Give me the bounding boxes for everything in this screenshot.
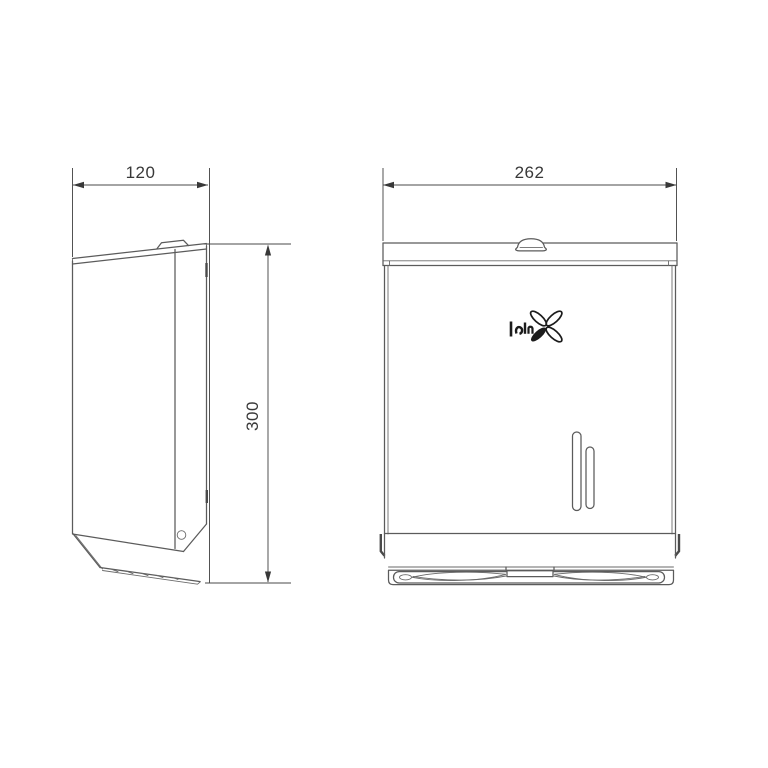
logo-wordmark: [511, 322, 533, 337]
arrowhead-bottom: [265, 572, 271, 583]
side-view: 120 300: [73, 163, 292, 584]
pinwheel-petal: [544, 325, 564, 344]
view-window-slots: [573, 432, 595, 511]
slot-centre-tab: [507, 571, 553, 577]
pinwheel-petal: [544, 309, 564, 328]
slot-end-oval-right: [647, 575, 659, 580]
chute-lip-inner: [103, 571, 201, 585]
front-chute: [381, 534, 679, 585]
pinwheel-petal: [528, 309, 548, 328]
chute-front-outer: [73, 534, 100, 568]
side-height-dimension: 300: [202, 244, 291, 583]
arrowhead-top: [265, 245, 271, 256]
arrowhead-left: [73, 182, 84, 188]
front-width-dimension: 262: [383, 163, 677, 241]
latch-dome-icon: [516, 239, 547, 251]
brand-logo: [511, 309, 564, 344]
dispenser-drawing-svg: 120 300: [0, 0, 768, 768]
logo-text-mark: [529, 327, 533, 334]
towel-wave-left: [412, 572, 506, 580]
slot-right: [586, 447, 594, 509]
dim-label-300: 300: [243, 401, 262, 431]
chute-side-edges: [385, 534, 676, 558]
arrowhead-left: [383, 182, 394, 188]
side-view-body: [73, 240, 207, 584]
lid-end-caps: [73, 244, 207, 265]
logo-text-mark: [516, 327, 522, 334]
slot-end-oval-left: [400, 575, 412, 580]
front-lid: [383, 239, 677, 266]
lock-screw-icon: [177, 531, 186, 540]
arrowhead-right: [197, 182, 208, 188]
dim-label-262: 262: [515, 163, 545, 182]
slot-left: [573, 432, 582, 511]
chute-front-inner: [76, 536, 103, 570]
side-width-dimension: 120: [73, 163, 210, 583]
pinwheel-x-icon: [528, 309, 564, 344]
chute-profile: [73, 534, 201, 585]
towel-wave-right: [554, 572, 646, 580]
front-body: [385, 266, 676, 535]
chute-lip-outer: [100, 568, 200, 582]
technical-drawing-canvas: 120 300: [0, 0, 768, 768]
front-view: 262: [381, 163, 679, 585]
front-bottom-diagonal: [184, 524, 207, 552]
dim-label-120: 120: [126, 163, 156, 182]
lid-end-ticks: [390, 261, 669, 266]
door-bottom-edge: [73, 534, 184, 552]
towel-exit-slot: [394, 567, 665, 583]
arrowhead-right: [666, 182, 677, 188]
